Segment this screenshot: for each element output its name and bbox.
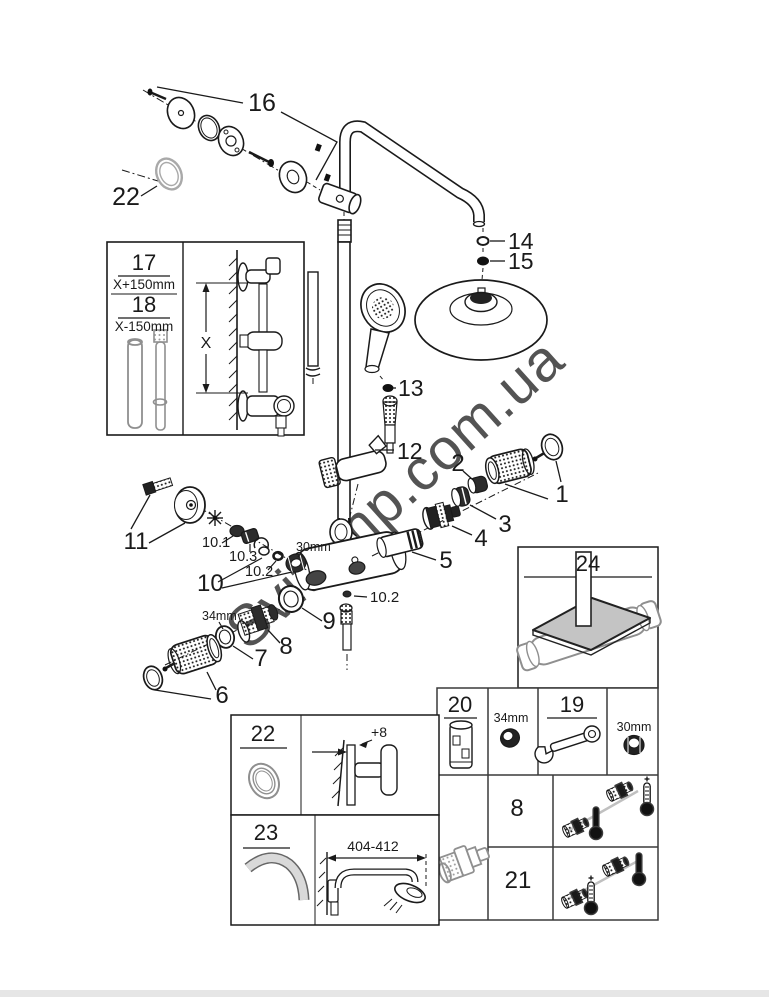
inset17-num: 17 <box>132 250 156 275</box>
callout-13: 13 <box>398 375 424 401</box>
dim-30mm: 30mm <box>296 540 331 554</box>
washer <box>259 547 269 555</box>
callout-10-2b: 10.2 <box>370 589 399 606</box>
inset22-num: 22 <box>251 721 275 746</box>
hose-pipe-segment <box>306 272 320 384</box>
callout-5: 5 <box>439 547 452 574</box>
screw-icon <box>148 89 167 100</box>
mounting-plate <box>162 93 199 133</box>
table-21: 21 <box>505 867 532 894</box>
table-20: 20 <box>448 692 472 717</box>
callout-10: 10 <box>197 570 224 597</box>
callout-15: 15 <box>508 248 534 274</box>
cap-1 <box>538 431 566 462</box>
callout-3: 3 <box>498 511 511 538</box>
inset18-num: 18 <box>132 292 156 317</box>
inset18-length: X-150mm <box>115 319 174 334</box>
star-washer <box>207 510 223 526</box>
callout-11: 11 <box>124 528 149 555</box>
callout-12: 12 <box>397 438 423 464</box>
ring-3 <box>450 486 471 509</box>
stop-knob-1 <box>483 447 536 486</box>
table-30mm: 30mm <box>617 720 652 734</box>
callout-22: 22 <box>112 183 140 211</box>
filter-ring-15 <box>477 257 489 266</box>
callout-4: 4 <box>474 525 487 552</box>
exploded-parts-drawing: Svitemp.com.ua <box>0 0 769 1000</box>
inset23-range: 404-412 <box>347 838 399 854</box>
parts-diagram-page: Svitemp.com.ua <box>0 0 769 1000</box>
knurled-handle-6 <box>165 632 225 677</box>
callout-10-2: 10.2 <box>245 564 273 580</box>
wall-union-16 <box>143 87 337 197</box>
cap-6 <box>140 664 165 693</box>
table-34mm: 34mm <box>494 711 529 725</box>
table-19: 19 <box>560 692 584 717</box>
table-8: 8 <box>510 795 523 822</box>
callout-8: 8 <box>279 633 292 660</box>
footer-bar <box>0 990 769 997</box>
knob-11 <box>175 487 206 523</box>
screw-11 <box>143 476 173 495</box>
seal-ring-13 <box>383 384 394 392</box>
callout-1: 1 <box>555 481 568 508</box>
wall-bracket <box>307 143 363 242</box>
callout-6: 6 <box>215 682 228 709</box>
inset17-length: X+150mm <box>113 277 175 292</box>
escutcheon-ring <box>274 157 311 197</box>
spacer-20-icon <box>450 721 472 768</box>
callout-2: 2 <box>451 450 464 477</box>
screw-icon <box>249 152 274 167</box>
callout-9: 9 <box>322 608 335 635</box>
dim-axis-x: X <box>201 335 212 352</box>
nut-30mm-icon <box>624 736 644 755</box>
dim-34mm: 34mm <box>202 609 237 623</box>
seal-ring-14 <box>478 237 489 245</box>
callout-16: 16 <box>248 89 276 117</box>
callout-10-3: 10.3 <box>229 549 257 565</box>
shower-arm <box>345 126 485 226</box>
inset23-num: 23 <box>254 820 278 845</box>
callout-7: 7 <box>254 645 267 672</box>
plug-screw <box>340 591 367 670</box>
callout-10-1: 10.1 <box>202 535 230 551</box>
inset22-offset: +8 <box>371 724 387 740</box>
hand-shower-group <box>352 276 413 453</box>
inset24-num: 24 <box>576 551 600 576</box>
